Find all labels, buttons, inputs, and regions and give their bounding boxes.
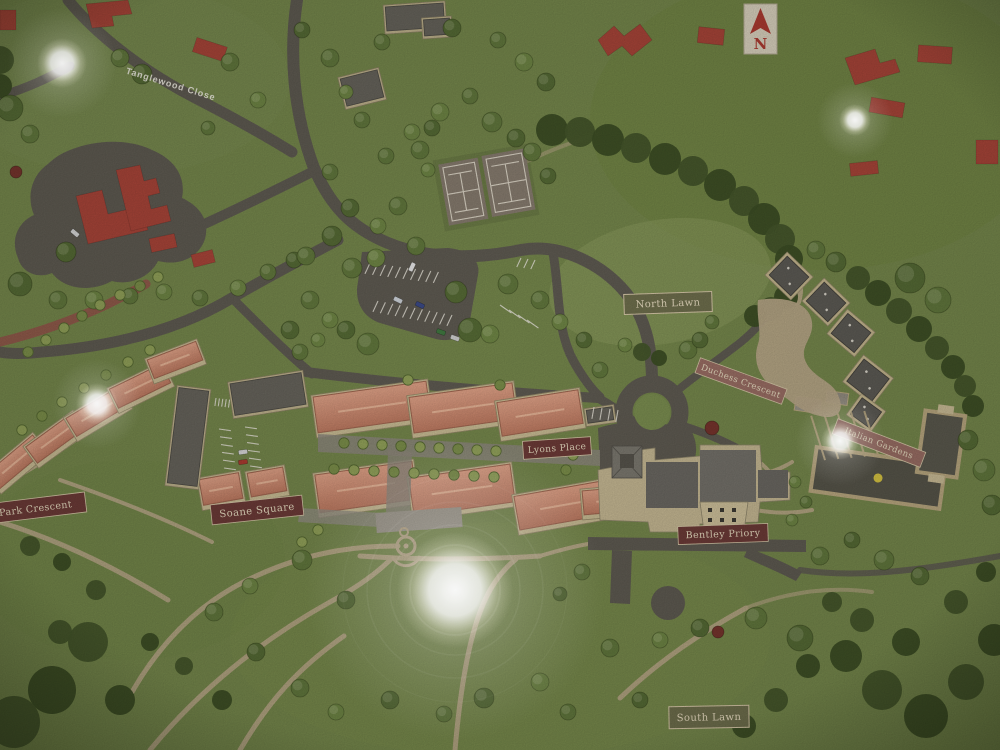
site-model-map: Tanglewood Close North Lawn Duchess Cres…: [0, 0, 1000, 750]
vignette: [0, 0, 1000, 750]
site-model-photo: Tanglewood Close North Lawn Duchess Cres…: [0, 0, 1000, 750]
